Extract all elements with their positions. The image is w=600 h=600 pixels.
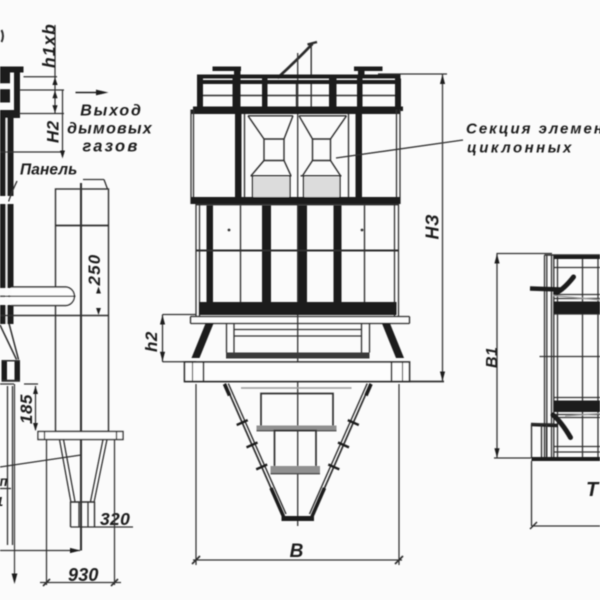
svg-text:Секция элемент: Секция элемент <box>466 121 600 138</box>
svg-text:930: 930 <box>68 565 99 585</box>
svg-text:250: 250 <box>85 254 104 287</box>
svg-text:НЗ: НЗ <box>423 214 443 240</box>
svg-text:Н2: Н2 <box>44 120 63 143</box>
svg-text:дымовых: дымовых <box>67 121 153 138</box>
svg-text:Выход: Выход <box>80 103 142 120</box>
svg-text:циклонных: циклонных <box>467 140 574 157</box>
svg-text:В: В <box>290 541 304 562</box>
svg-text:Т: Т <box>586 479 600 501</box>
svg-text:185: 185 <box>17 394 36 424</box>
svg-text:В1: В1 <box>484 347 501 368</box>
svg-text:Панель: Панель <box>20 162 77 179</box>
svg-text:уп: уп <box>0 474 9 489</box>
svg-text:h2: h2 <box>142 331 161 352</box>
svg-text:газов: газов <box>82 138 139 156</box>
svg-text:h1xb: h1xb <box>39 23 59 68</box>
svg-text:1: 1 <box>0 494 3 509</box>
